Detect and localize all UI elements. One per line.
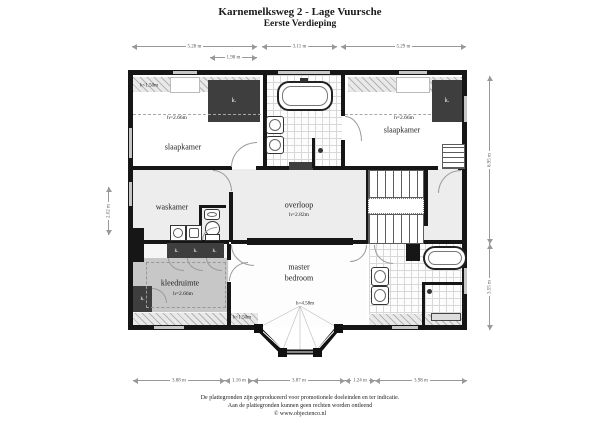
dimension-label: 3.87 m — [290, 378, 308, 383]
dormer-window — [396, 77, 430, 93]
shower-partition — [312, 138, 315, 168]
room-label-master-bedroom: master — [288, 263, 309, 272]
dimension: 1.16 m — [225, 380, 253, 381]
window — [399, 71, 427, 74]
height-label: h=2.82m — [289, 212, 309, 218]
wall — [341, 140, 345, 170]
footer-line-2: Aan de plattegronden kunnen geen rechten… — [0, 402, 600, 410]
sink — [204, 209, 220, 220]
room-label-kleedruimte: kleedruimte — [161, 279, 199, 288]
dimension-label: 3.11 m — [291, 44, 309, 49]
washing-machine — [170, 225, 186, 241]
footer-line-3: © www.objectenco.nl — [0, 410, 600, 418]
closet: k. — [205, 243, 224, 258]
wall — [247, 238, 353, 245]
dimension-label: 3.88 m — [170, 378, 188, 383]
window — [154, 326, 184, 329]
room-label-master-bedroom: bedroom — [285, 274, 313, 283]
shower-partition — [422, 282, 464, 285]
page-title: Karnemelksweg 2 - Lage Vuursche — [0, 6, 600, 18]
dimension-label: 5.29 m — [395, 44, 413, 49]
wall — [199, 205, 226, 208]
height-label: h=4.58m — [296, 302, 314, 307]
wall — [353, 240, 367, 244]
footer-line-1: De plattegronden zijn geproduceerd voor … — [0, 394, 600, 402]
closet: k. — [186, 243, 205, 258]
door-threshold — [289, 162, 313, 170]
height-line — [345, 114, 431, 115]
shower-bench — [431, 313, 461, 321]
room-label-slaapkamer-right: slaapkamer — [384, 126, 420, 135]
wall — [231, 240, 247, 244]
shower-head — [427, 289, 432, 294]
sink — [266, 136, 284, 154]
sink — [266, 116, 284, 134]
floorplan-page: Karnemelksweg 2 - Lage Vuursche Eerste V… — [0, 0, 600, 424]
dimension-label: 2.02 m — [107, 202, 112, 220]
bay-window — [248, 298, 352, 360]
wall — [424, 168, 428, 226]
window — [278, 71, 330, 74]
dimension-label: 5.28 m — [186, 44, 204, 49]
dimension: 3.88 m — [133, 380, 225, 381]
dimension-label: 1.98 m — [225, 55, 243, 60]
window — [392, 326, 418, 329]
dimension-label: 3.55 m — [488, 278, 493, 296]
dimension: 3.55 m — [489, 244, 490, 330]
closet-label: k. — [140, 296, 144, 302]
room-label-slaapkamer-left: slaapkamer — [165, 143, 201, 152]
bathtub-tap — [300, 78, 308, 82]
closet-label: k. — [174, 248, 178, 254]
dimension: 3.11 m — [262, 46, 337, 47]
room-label-waskamer: waskamer — [156, 203, 188, 212]
wall — [227, 282, 231, 330]
dimension: 5.28 m — [132, 46, 257, 47]
closet: k. — [167, 243, 186, 258]
attic-stairs — [442, 144, 465, 169]
chimney — [130, 228, 144, 262]
window — [464, 96, 467, 122]
dimension: 2.02 m — [108, 187, 109, 235]
wall — [229, 192, 233, 242]
window — [173, 71, 197, 74]
dimension: 5.29 m — [341, 46, 466, 47]
wall — [128, 325, 260, 330]
closet: k. — [208, 80, 260, 122]
closet-label: k. — [232, 98, 237, 104]
dormer-window — [170, 77, 200, 93]
closet-label: k. — [212, 248, 216, 254]
window — [129, 182, 132, 206]
dimension-label: 6.95 m — [488, 151, 493, 169]
staircase-landing — [368, 198, 424, 214]
bathtub — [423, 246, 467, 270]
footer: De plattegronden zijn geproduceerd voor … — [0, 394, 600, 418]
height-line — [133, 114, 261, 115]
chimney — [406, 243, 420, 261]
height-label: h=2.66m — [167, 115, 187, 121]
height-label: h=2.66m — [173, 291, 193, 297]
shower-partition — [422, 282, 425, 326]
wall — [199, 205, 202, 227]
wall — [256, 166, 289, 170]
dimension-label: 1.24 m — [351, 378, 369, 383]
sink — [371, 286, 389, 305]
staircase-run — [368, 170, 424, 198]
window — [464, 268, 467, 294]
staircase-run — [368, 214, 424, 244]
dimension: 3.98 m — [375, 380, 467, 381]
height-label: h=2.66m — [394, 115, 414, 121]
low-height-label: h<1.50m — [140, 84, 158, 89]
dimension: 3.87 m — [253, 380, 345, 381]
dimension: 1.24 m — [345, 380, 375, 381]
closet-label: k. — [445, 98, 450, 104]
dryer — [186, 225, 202, 241]
sink — [371, 267, 389, 286]
closet: k. — [432, 80, 462, 122]
window — [129, 128, 132, 158]
dimension-label: 3.98 m — [412, 378, 430, 383]
low-height-label: h<1.50m — [233, 316, 251, 321]
wall — [341, 70, 345, 116]
closet-label: k. — [193, 248, 197, 254]
page-subtitle: Eerste Verdieping — [0, 19, 600, 29]
dimension: 6.95 m — [489, 76, 490, 244]
dimension-label: 1.16 m — [230, 378, 248, 383]
dimension: 1.98 m — [210, 57, 257, 58]
shower-head — [318, 148, 323, 153]
room-label-overloop: overloop — [285, 201, 313, 210]
bathtub — [277, 81, 333, 111]
